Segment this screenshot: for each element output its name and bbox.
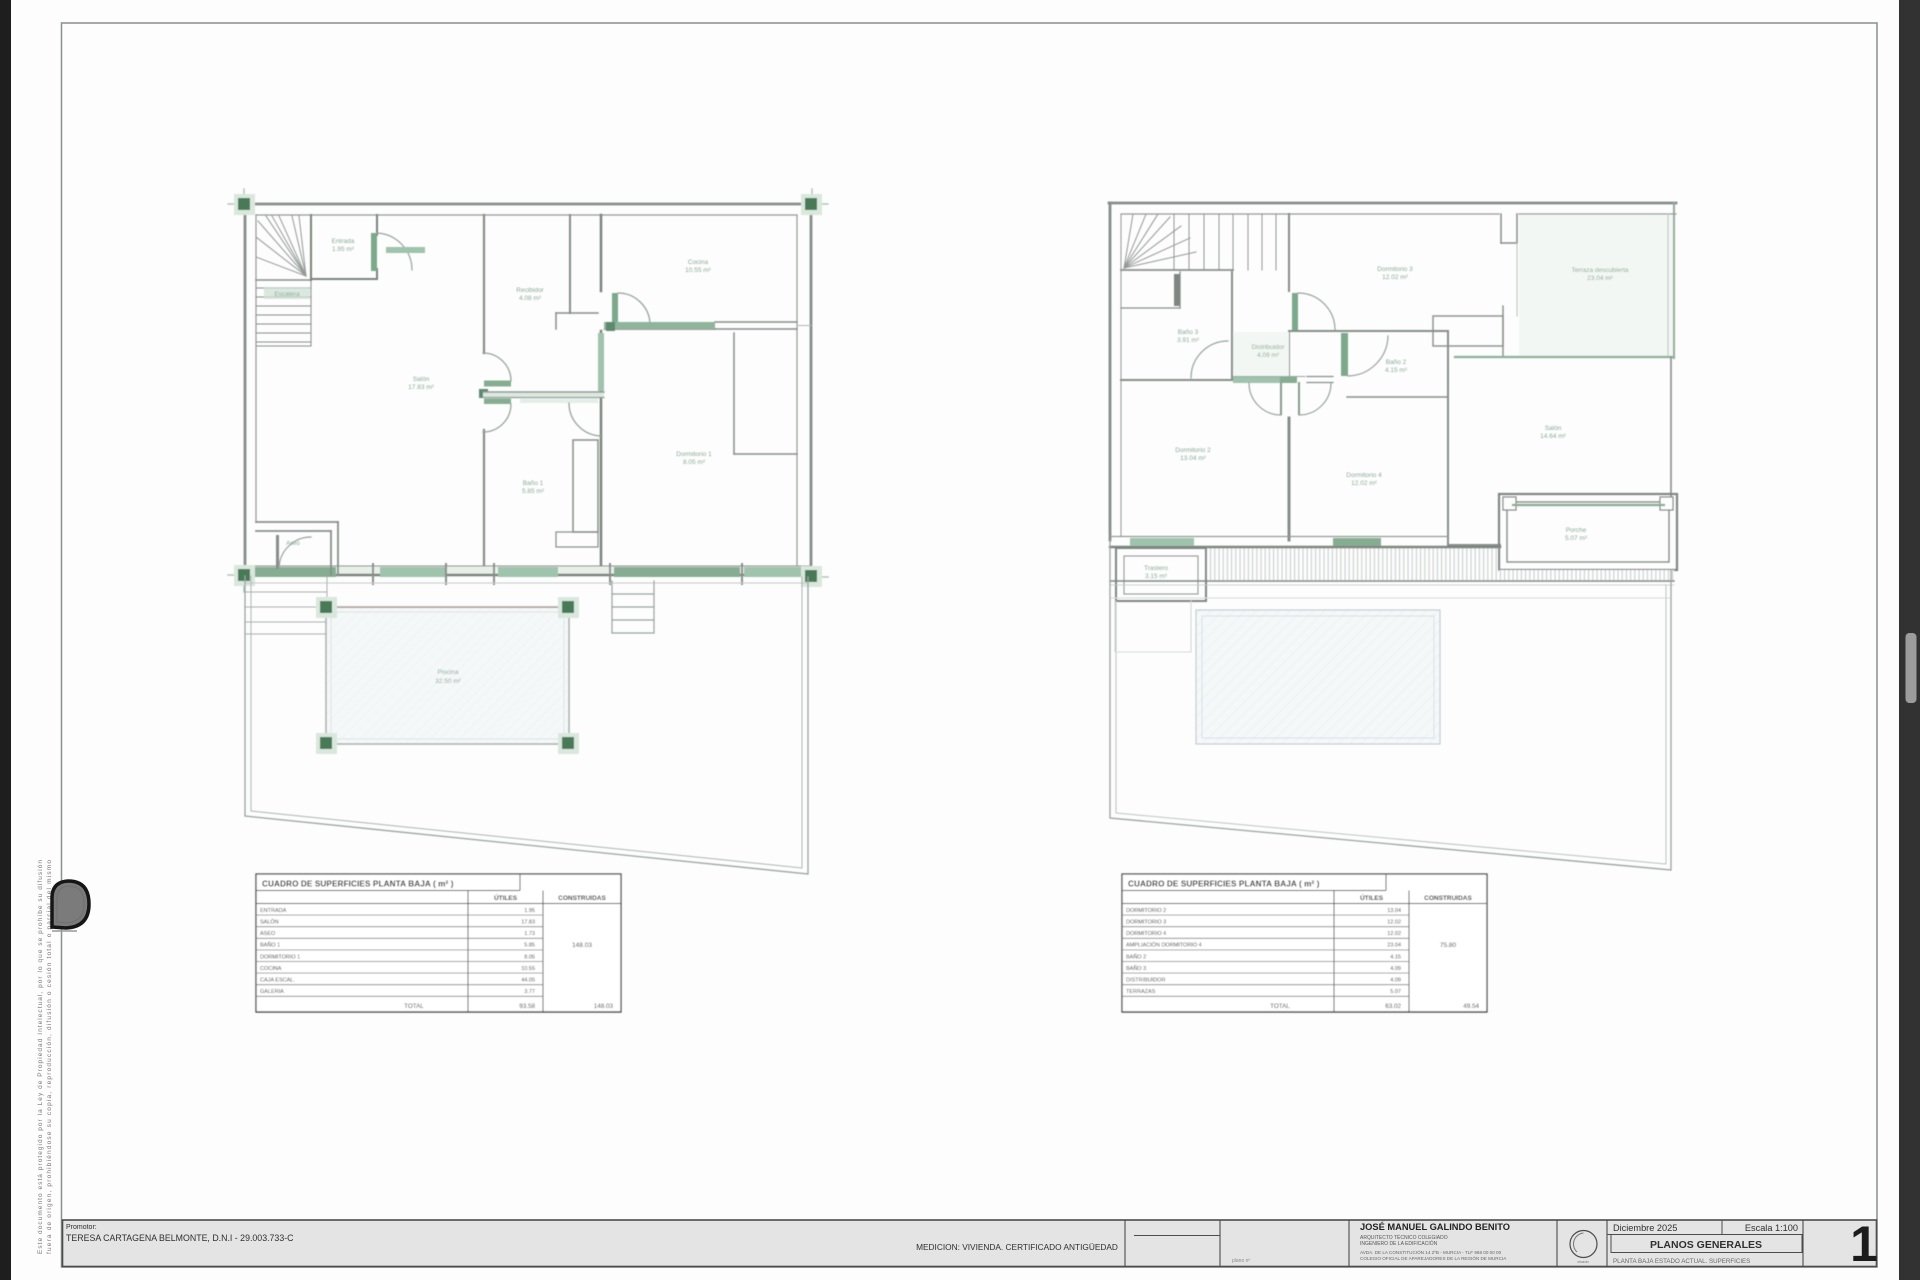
svg-text:12.02: 12.02 [1387,931,1401,937]
svg-text:32.50 m²: 32.50 m² [435,678,461,685]
svg-text:4.08 m²: 4.08 m² [519,295,542,302]
svg-text:1.73: 1.73 [524,931,535,937]
svg-text:4.09: 4.09 [1390,978,1401,984]
svg-text:23.04: 23.04 [1387,943,1401,949]
svg-text:Salón: Salón [413,376,430,383]
svg-text:Baño 2: Baño 2 [1386,359,1407,366]
svg-text:5.85: 5.85 [524,943,535,949]
svg-text:DORMITORIO 3: DORMITORIO 3 [1126,920,1166,926]
svg-text:10.55 m²: 10.55 m² [685,267,711,274]
svg-text:13.04 m²: 13.04 m² [1180,455,1206,462]
svg-text:44.05: 44.05 [521,978,535,984]
svg-text:Dormitorio 2: Dormitorio 2 [1175,447,1211,454]
svg-text:Aseo: Aseo [286,541,300,547]
svg-text:Diciembre 2025: Diciembre 2025 [1613,1223,1677,1233]
svg-text:ÚTILES: ÚTILES [1360,893,1384,902]
svg-text:TOTAL: TOTAL [1270,1003,1290,1010]
svg-text:DORMITORIO 4: DORMITORIO 4 [1126,931,1166,937]
svg-text:PLANOS GENERALES: PLANOS GENERALES [1650,1239,1762,1251]
svg-text:AVDA. DE LA CONSTITUCIÓN 14 2º: AVDA. DE LA CONSTITUCIÓN 14 2ºB - MURCIA… [1360,1249,1502,1255]
svg-text:DORMITORIO 2: DORMITORIO 2 [1126,908,1166,914]
svg-text:4.15: 4.15 [1390,954,1401,960]
svg-text:DISTRIBUIDOR: DISTRIBUIDOR [1126,978,1165,984]
svg-text:TERRAZAS: TERRAZAS [1126,989,1156,995]
svg-text:14.64 m²: 14.64 m² [1540,433,1566,440]
svg-text:148.03: 148.03 [594,1003,614,1010]
svg-text:Dormitorio 4: Dormitorio 4 [1346,472,1382,479]
svg-text:JOSÉ MANUEL GALINDO BENITO: JOSÉ MANUEL GALINDO BENITO [1360,1222,1510,1232]
svg-text:1.95: 1.95 [524,908,535,914]
svg-text:12.02 m²: 12.02 m² [1351,480,1377,487]
svg-text:plano nº: plano nº [1232,1258,1250,1264]
svg-text:Cocina: Cocina [688,259,709,266]
svg-text:Terraza descubierta: Terraza descubierta [1571,267,1628,274]
svg-text:148.03: 148.03 [572,942,592,949]
svg-text:13.04: 13.04 [1387,908,1401,914]
svg-text:63.02: 63.02 [1385,1003,1401,1010]
svg-text:Promotor:: Promotor: [66,1224,97,1231]
svg-text:12.02 m²: 12.02 m² [1382,274,1408,281]
svg-text:Dormitorio 3: Dormitorio 3 [1377,266,1413,273]
svg-text:23.04 m²: 23.04 m² [1587,275,1613,282]
svg-text:AMPLIACIÓN DORMITORIO 4: AMPLIACIÓN DORMITORIO 4 [1126,942,1202,949]
svg-text:4.15 m²: 4.15 m² [1385,367,1408,374]
svg-text:8.05 m²: 8.05 m² [683,459,706,466]
svg-text:PLANTA BAJA ESTADO ACTUAL. SUP: PLANTA BAJA ESTADO ACTUAL. SUPERFICIES [1613,1258,1750,1265]
svg-text:visado: visado [1577,1259,1589,1264]
svg-text:Salón: Salón [1545,425,1562,432]
svg-text:ENTRADA: ENTRADA [260,908,287,914]
svg-text:3.77: 3.77 [524,989,535,995]
svg-text:DORMITORIO 1: DORMITORIO 1 [260,954,300,960]
svg-text:Porche: Porche [1566,527,1587,534]
svg-text:ÚTILES: ÚTILES [494,893,518,902]
svg-text:ARQUITECTO TÉCNICO COLEGIADO: ARQUITECTO TÉCNICO COLEGIADO [1360,1234,1448,1241]
svg-text:17.83 m²: 17.83 m² [408,384,434,391]
svg-text:INGENIERO DE LA EDIFICACIÓN: INGENIERO DE LA EDIFICACIÓN [1360,1240,1438,1247]
svg-text:3.15 m²: 3.15 m² [1145,573,1168,580]
svg-text:49.54: 49.54 [1463,1003,1479,1010]
svg-text:TERESA CARTAGENA BELMONTE, D.N: TERESA CARTAGENA BELMONTE, D.N.I - 29.00… [66,1233,294,1243]
svg-text:4.09 m²: 4.09 m² [1257,352,1280,359]
svg-text:CONSTRUIDAS: CONSTRUIDAS [558,895,606,902]
svg-text:1: 1 [1850,1216,1878,1272]
svg-text:BAÑO 1: BAÑO 1 [260,942,280,949]
svg-text:Trastero: Trastero [1144,565,1168,572]
svg-text:Escalera: Escalera [274,291,300,298]
svg-text:Entrada: Entrada [332,238,355,245]
svg-text:BAÑO 2: BAÑO 2 [1126,953,1146,960]
svg-text:Dormitorio 1: Dormitorio 1 [676,451,712,458]
svg-text:1.95 m²: 1.95 m² [332,246,355,253]
svg-text:93.58: 93.58 [519,1003,535,1010]
svg-text:8.05: 8.05 [524,954,535,960]
svg-text:Baño 3: Baño 3 [1178,329,1199,336]
svg-text:Este documento está protegido: Este documento está protegido por la Ley… [37,860,44,1254]
svg-text:10.55: 10.55 [521,966,535,972]
svg-text:ASEO: ASEO [260,931,276,937]
svg-text:Distribuidor: Distribuidor [1252,344,1286,351]
svg-text:COLEGIO OFICIAL DE APAREJADORE: COLEGIO OFICIAL DE APAREJADORES DE LA RE… [1360,1255,1507,1261]
svg-text:75.80: 75.80 [1440,942,1457,949]
svg-text:5.07 m²: 5.07 m² [1565,535,1588,542]
svg-text:MEDICION: VIVIENDA. CERTIFICAD: MEDICION: VIVIENDA. CERTIFICADO ANTIGÜED… [916,1242,1118,1252]
svg-text:CONSTRUIDAS: CONSTRUIDAS [1424,895,1472,902]
svg-text:Escala 1:100: Escala 1:100 [1745,1223,1798,1233]
svg-text:5.07: 5.07 [1390,989,1401,995]
svg-text:Piscina: Piscina [438,669,459,676]
svg-text:SALÓN: SALÓN [260,919,279,926]
svg-text:Baño 1: Baño 1 [523,480,544,487]
svg-text:17.83: 17.83 [521,920,535,926]
svg-text:5.85 m²: 5.85 m² [522,488,545,495]
svg-text:GALERIA: GALERIA [260,989,284,995]
svg-text:CUADRO DE SUPERFICIES PLANTA B: CUADRO DE SUPERFICIES PLANTA BAJA ( m² ) [262,880,454,889]
svg-text:CAJA ESCAL.: CAJA ESCAL. [260,978,295,984]
svg-text:BAÑO 3: BAÑO 3 [1126,965,1146,972]
svg-text:COCINA: COCINA [260,966,282,972]
svg-text:4.09: 4.09 [1390,966,1401,972]
svg-text:12.02: 12.02 [1387,920,1401,926]
svg-text:Recibidor: Recibidor [516,287,544,294]
svg-text:3.91 m²: 3.91 m² [1177,337,1200,344]
svg-text:TOTAL: TOTAL [404,1003,424,1010]
svg-text:CUADRO DE SUPERFICIES PLANTA B: CUADRO DE SUPERFICIES PLANTA BAJA ( m² ) [1128,880,1320,889]
